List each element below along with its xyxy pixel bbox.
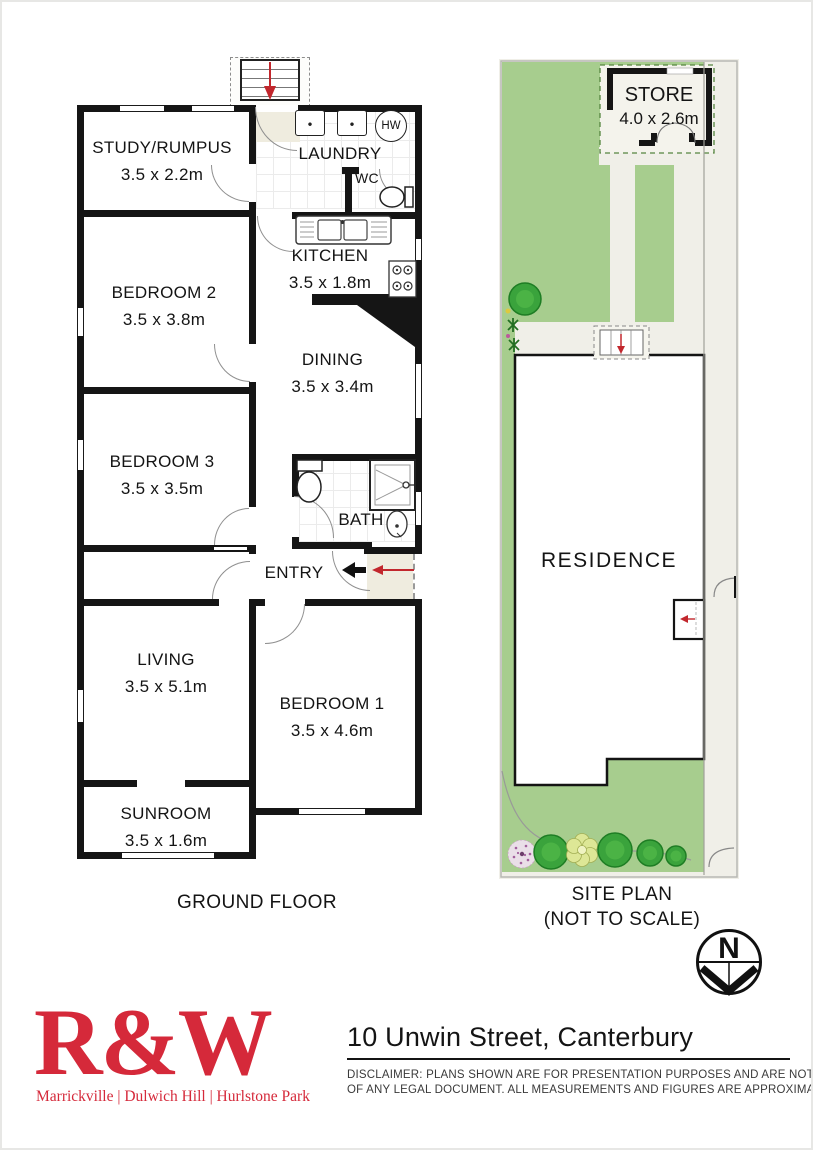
laundry-tub-icon	[295, 110, 325, 136]
agency-logo: R&W	[34, 1002, 271, 1082]
floorplan-page: HW	[0, 0, 813, 1150]
wall	[77, 210, 256, 217]
door-arc	[265, 604, 305, 644]
tree-icon	[509, 283, 541, 315]
wall-slot	[214, 547, 247, 550]
door-arc	[214, 344, 250, 382]
store-dims: 4.0 x 2.6m	[619, 109, 698, 128]
wall	[292, 542, 372, 549]
ground-floor-plan: HW	[2, 2, 462, 932]
wall	[249, 545, 256, 554]
room-label-kitchen: KITCHEN 3.5 x 1.8m	[269, 242, 391, 296]
wall	[77, 599, 219, 606]
site-stair-icon	[594, 326, 649, 359]
tree-icon	[598, 833, 632, 867]
room-dims: 3.5 x 4.6m	[252, 717, 412, 744]
room-name: LIVING	[86, 646, 246, 673]
door-arc	[212, 561, 250, 599]
tree-icon	[534, 835, 568, 869]
ground-floor-title: GROUND FLOOR	[152, 890, 362, 915]
site-plan: STORE 4.0 x 2.6m RESIDENCE	[499, 59, 739, 879]
north-label: N	[718, 932, 740, 965]
tree-icon	[637, 840, 663, 866]
wall	[185, 780, 256, 787]
window	[192, 105, 234, 112]
shower-icon	[368, 458, 418, 512]
hot-water-label: HW	[381, 120, 400, 132]
flower-dot-icon	[506, 309, 511, 314]
room-name: BEDROOM 1	[252, 690, 412, 717]
wall	[364, 547, 422, 554]
site-plan-title-line: SITE PLAN	[522, 882, 722, 907]
wall	[249, 599, 265, 606]
room-dims: 3.5 x 5.1m	[86, 673, 246, 700]
site-plan-subtitle: (NOT TO SCALE)	[522, 907, 722, 932]
path-center	[610, 159, 635, 324]
pink-bush-icon	[508, 840, 536, 868]
room-name: ENTRY	[254, 559, 334, 586]
room-name: BEDROOM 3	[82, 448, 242, 475]
room-dims: 3.5 x 3.5m	[82, 475, 242, 502]
room-label-entry: ENTRY	[254, 559, 334, 586]
room-label-dining: DINING 3.5 x 3.4m	[270, 346, 395, 400]
room-label-sunroom: SUNROOM 3.5 x 1.6m	[86, 800, 246, 854]
north-arrow-icon: N	[693, 925, 765, 999]
disclaimer-line-1: DISCLAIMER: PLANS SHOWN ARE FOR PRESENTA…	[347, 1068, 813, 1083]
room-dims: 3.5 x 1.6m	[86, 827, 246, 854]
cooktop-icon	[388, 260, 417, 298]
chimney-corner	[357, 305, 415, 347]
window	[120, 105, 164, 112]
wall	[249, 382, 256, 507]
room-name: SUNROOM	[86, 800, 246, 827]
wall	[77, 387, 256, 394]
entry-direction-arrow-icon	[372, 562, 416, 578]
wall	[249, 202, 256, 344]
property-address: 10 Unwin Street, Canterbury	[347, 1022, 693, 1053]
window	[77, 690, 84, 722]
address-underline	[347, 1058, 790, 1060]
room-label-bedroom1: BEDROOM 1 3.5 x 4.6m	[252, 690, 412, 744]
hot-water-unit-icon: HW	[375, 110, 407, 142]
room-label-wc: WC	[350, 170, 384, 186]
room-label-laundry: LAUNDRY	[285, 140, 395, 167]
room-name: KITCHEN	[269, 242, 391, 269]
room-name: BATH	[324, 506, 398, 533]
stair-direction-arrow-icon	[262, 60, 278, 102]
room-label-bedroom3: BEDROOM 3 3.5 x 3.5m	[82, 448, 242, 502]
room-name: WC	[350, 170, 384, 186]
room-name: BEDROOM 2	[84, 279, 244, 306]
room-dims: 3.5 x 3.8m	[84, 306, 244, 333]
path-side	[674, 159, 704, 324]
entry-arrow-icon	[342, 560, 372, 580]
disclaimer-line-2: OF ANY LEGAL DOCUMENT. ALL MEASUREMENTS …	[347, 1083, 813, 1098]
side-porch	[674, 600, 704, 639]
room-name: DINING	[270, 346, 395, 373]
wc-toilet-icon	[378, 182, 416, 212]
agency-offices: Marrickville | Dulwich Hill | Hurlstone …	[36, 1088, 310, 1106]
room-dims: 3.5 x 2.2m	[82, 161, 242, 188]
agency-logo-text: R&W	[34, 989, 271, 1095]
room-label-bath: BATH	[324, 506, 398, 533]
site-plan-title: SITE PLAN (NOT TO SCALE)	[522, 882, 722, 932]
room-name: LAUNDRY	[285, 140, 395, 167]
room-name: STUDY/RUMPUS	[82, 134, 242, 161]
room-label-living: LIVING 3.5 x 5.1m	[86, 646, 246, 700]
tree-icon	[666, 846, 686, 866]
residence-label: RESIDENCE	[541, 549, 677, 572]
room-label-study: STUDY/RUMPUS 3.5 x 2.2m	[82, 134, 242, 188]
store-name: STORE	[625, 84, 694, 106]
flower-dot-icon	[506, 334, 510, 338]
window	[415, 239, 422, 260]
bath-toilet-icon	[294, 458, 328, 506]
lawn-side-strip	[502, 322, 515, 785]
wall	[77, 780, 137, 787]
room-dims: 3.5 x 3.4m	[270, 373, 395, 400]
window	[299, 808, 365, 815]
wall	[415, 599, 422, 815]
room-dims: 3.5 x 1.8m	[269, 269, 391, 296]
window	[415, 364, 422, 418]
room-label-bedroom2: BEDROOM 2 3.5 x 3.8m	[84, 279, 244, 333]
window	[77, 308, 84, 336]
door-arc	[214, 508, 249, 545]
laundry-tub-icon	[337, 110, 367, 136]
wall	[305, 599, 422, 606]
